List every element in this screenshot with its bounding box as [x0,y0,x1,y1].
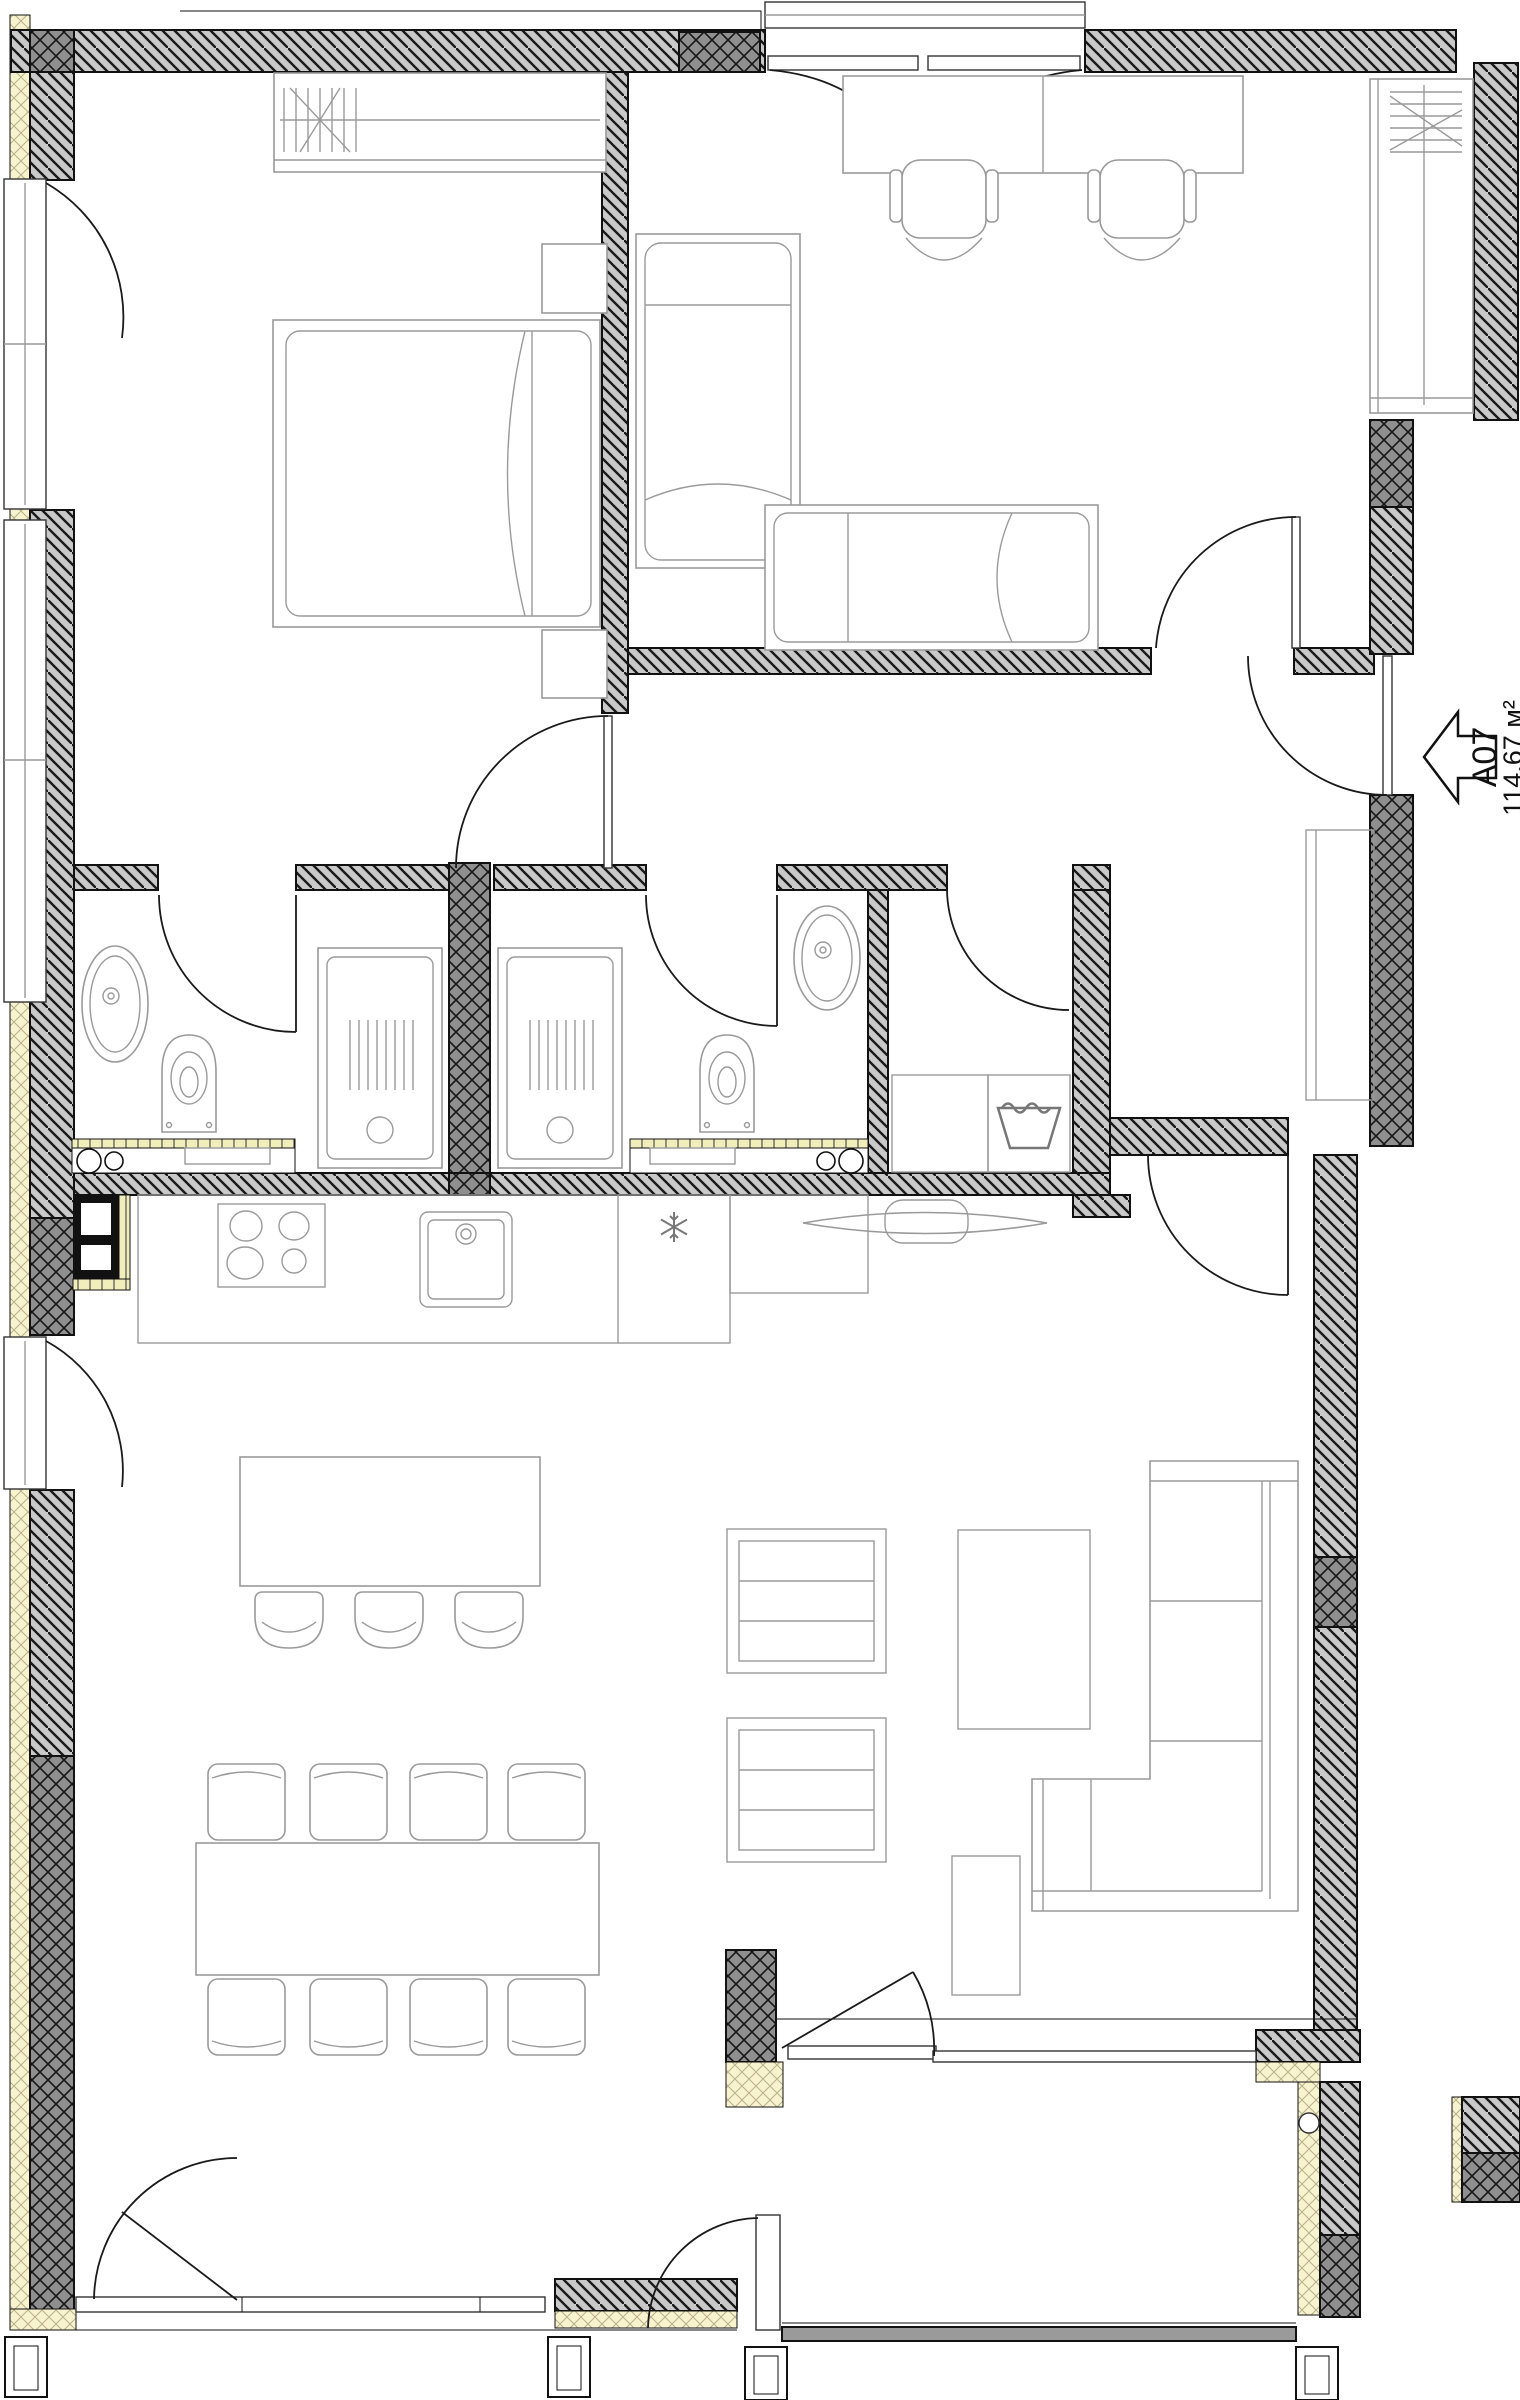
insulation-living-bottom [555,2311,737,2328]
living-big-window [76,2297,545,2312]
living-door-arc [94,2158,237,2299]
wall-right-upper [1474,63,1518,420]
insulation-corner-bl [10,2309,76,2330]
ledge-bowl-4 [839,1149,863,1173]
kitchen [73,1195,868,1343]
bedroom-wardrobe [274,73,606,172]
ledge-bowl-2 [105,1152,123,1170]
footings [5,2337,1338,2400]
wall-top-right-segment [1085,30,1456,72]
terrace-corner-insulation [1256,2062,1320,2082]
plumbing-shaft [449,863,490,1193]
bathroom-1 [72,946,442,1173]
nightstand-1 [542,244,607,313]
wall-hall-jog [1073,1195,1130,1217]
column-top-middle [679,32,760,72]
wall-left-concrete [30,1756,74,2316]
wall-band-2 [296,865,454,890]
wall-entrance-concrete [1370,795,1413,1146]
coffee-table [958,1530,1090,1729]
bar-stools [255,1592,523,1648]
laundry-room [892,1075,1070,1172]
entrance-label: A07 114,67 м² [1424,700,1520,816]
wall-band-1 [74,865,158,890]
sink-1 [82,946,148,1062]
island-table [240,1457,540,1586]
console-table [803,1213,1047,1234]
terrace-swing-door-arc [913,1972,934,2056]
kitchen-counter-right [730,1195,868,1293]
kids-room-furniture [636,76,1473,650]
bedroom-window-casement-arc [46,183,123,338]
bath2-door-arc [646,895,777,1026]
column-living-right [1314,1557,1357,1627]
laundry-door-arc [947,890,1069,1010]
kitchen-sink [420,1212,512,1307]
wall-laundry-right [1073,890,1110,1195]
dining-chairs-bottom [208,1979,585,2055]
kids-window-right-leaf [928,56,1080,70]
drain-outlet-icon [1299,2113,1319,2133]
kitchen-counter [138,1195,730,1343]
cooktop [218,1204,325,1287]
wall-hall-bottom [1110,1118,1288,1155]
bedroom-door-arc [456,716,608,868]
living-door-leaf [122,2212,237,2300]
floorplan-page: A07 114,67 м² [0,0,1520,2400]
terrace-front-edge [782,2327,1296,2341]
kids-wardrobe [1370,79,1473,413]
wall-band-3 [494,865,646,890]
office-chair-1 [890,160,998,260]
terrace-sliding-leaf-2 [933,2051,1256,2062]
ledge-bowl-1 [77,1149,101,1173]
bathroom-2 [498,906,868,1173]
floorplan-drawing: A07 114,67 м² [0,0,1520,2400]
ledge-bowl-3 [817,1152,835,1170]
bedroom-door-leaf [604,716,612,868]
sink-2 [794,906,860,1010]
shower-1 [318,948,442,1168]
column-left-kitchen [30,1218,74,1335]
office-chair-2 [1088,160,1196,260]
terrace-side-door [756,2215,780,2330]
kids-door-arc [1156,517,1296,648]
toilet-2 [700,1035,754,1132]
snowflake-icon [661,1212,687,1242]
bath1-door-arc [159,895,296,1032]
wall-top-left-segment [11,30,765,72]
wall-living-bottom [555,2279,737,2311]
kids-door-leaf [1292,517,1300,648]
laundry-counter-1 [892,1075,988,1172]
neighbour-wall-stub [1462,2097,1520,2153]
dining-chairs-top [208,1764,585,1840]
wall-kids-bottom-a [628,648,1151,674]
wall-bath-laundry [868,890,888,1173]
wall-band-4 [777,865,947,890]
neighbour-wall-stub-column [1462,2153,1520,2202]
column-entrance-top [1370,420,1413,507]
shelf-unit-1 [727,1529,886,1673]
entrance-door-leaf [1383,656,1392,795]
kids-bed-horizontal-frame [765,505,1098,650]
wall-band-5 [1073,865,1110,890]
sofa-chaise [952,1856,1020,1995]
wall-left-3 [30,1490,74,1756]
shower-2 [498,948,622,1168]
terrace-swing-door-leaf [782,1972,913,2048]
terrace-pier-insulation [726,2062,783,2107]
wall-entrance-upper [1370,507,1413,654]
bedroom-furniture [273,73,607,698]
toilet-1 [162,1035,216,1132]
laundry-tub-icon [998,1104,1060,1149]
wall-band-bottom [74,1173,1110,1195]
exterior-ledge-line [180,11,761,30]
hall-living-door-arc [1148,1155,1288,1295]
nightstand-2 [542,630,607,698]
terrace-top-right-wall [1256,2030,1360,2062]
corner-sofa [952,1461,1298,1995]
wall-left-1 [30,72,74,180]
tile-ledge-band-1 [72,1139,295,1148]
terrace-pier [726,1950,776,2062]
kids-window-left-leaf [768,56,918,70]
living-window-casement-arc [46,1341,123,1487]
wall-kids-bottom-b [1294,648,1374,674]
terrace-right-wall [1320,2082,1360,2235]
stub-insulation [1452,2097,1462,2202]
unit-area-label: 114,67 м² [1498,700,1520,816]
dining-table [196,1843,599,1975]
double-bed-frame [273,320,600,627]
plumbing-shaft-foot [449,1173,490,1195]
tile-ledge-band-2 [630,1139,868,1148]
terrace-sliding-leaf-1 [788,2046,936,2059]
entrance-door-arc [1248,656,1387,795]
shelf-unit-2 [727,1718,886,1862]
terrace-right-column [1320,2235,1360,2317]
laundry-counter-2 [988,1075,1070,1172]
